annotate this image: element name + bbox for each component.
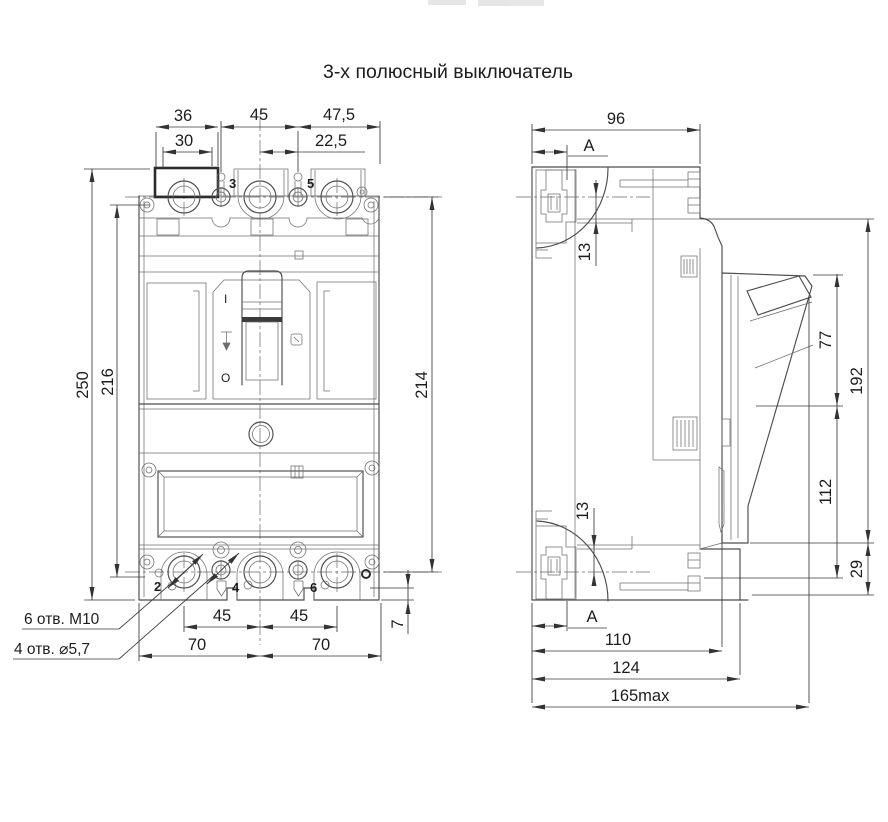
switch-on-symbol: I <box>224 292 227 306</box>
dim-250: 250 <box>74 371 92 399</box>
front-centerlines <box>125 116 442 645</box>
right-panel <box>317 282 376 399</box>
label-recess <box>158 471 363 537</box>
front-view: 3 5 I O <box>13 106 442 661</box>
mid-section <box>142 422 379 537</box>
vent-grille-icon <box>673 417 697 450</box>
dim-22-5: 22,5 <box>315 132 347 150</box>
dim-110: 110 <box>605 631 631 649</box>
terminal-section-bottom <box>536 511 608 601</box>
switch-area: I O <box>147 271 376 399</box>
pole-number-6: 6 <box>310 580 317 595</box>
section-label-a-top: A <box>583 137 594 155</box>
left-panel <box>147 283 206 399</box>
pole-number-3: 3 <box>229 176 236 191</box>
dim-77: 77 <box>817 331 835 349</box>
mounting-hole <box>364 198 378 212</box>
technical-drawing: 3-х полюсный выключатель <box>0 0 888 822</box>
dim-7: 7 <box>389 619 407 628</box>
toggle-handle <box>242 271 282 385</box>
seal-tab <box>291 466 303 478</box>
terminal-screw <box>688 172 700 187</box>
dim-214: 214 <box>413 371 431 399</box>
dim-192: 192 <box>848 367 866 395</box>
note-m10: 6 отв. М10 <box>24 611 100 628</box>
dim-70-right: 70 <box>312 636 330 654</box>
dim-45-bottom-right: 45 <box>290 607 308 625</box>
side-dimensions: 96 A 13 13 A 77 <box>532 110 874 707</box>
dim-45-top: 45 <box>250 106 268 124</box>
terminal-screw <box>688 576 700 591</box>
terminal-screw <box>688 553 700 568</box>
bottom-terminals: 2 4 6 <box>140 542 379 600</box>
dim-47-5: 47,5 <box>323 106 355 124</box>
dim-70-left: 70 <box>188 636 206 654</box>
dim-165max: 165max <box>611 687 670 705</box>
vent-grille-icon <box>681 256 697 277</box>
dim-216: 216 <box>99 368 117 396</box>
dim-13-top: 13 <box>576 243 594 261</box>
dim-13-bottom: 13 <box>574 502 592 520</box>
dim-124: 124 <box>612 659 640 677</box>
switch-off-symbol: O <box>221 371 230 385</box>
side-view: 96 A 13 13 A 77 <box>516 110 874 707</box>
dim-36: 36 <box>174 107 192 125</box>
side-outline <box>532 167 748 600</box>
handle-cover <box>700 273 813 549</box>
dim-45-bottom-left: 45 <box>213 607 231 625</box>
cropped-edge-artifact <box>428 0 544 6</box>
trip-position-icon <box>221 332 232 350</box>
top-terminals: 3 5 <box>140 170 378 219</box>
dim-96: 96 <box>607 110 625 128</box>
pole-number-2: 2 <box>154 579 161 594</box>
pole-number-4: 4 <box>232 580 240 595</box>
terminal-screw <box>688 198 700 213</box>
drawing-title: 3-х полюсный выключатель <box>323 61 573 83</box>
note-diameter-5-7: 4 отв. ⌀5,7 <box>14 641 90 658</box>
terminal-block-1 <box>155 168 218 197</box>
dim-112: 112 <box>817 479 835 505</box>
pole-number-5: 5 <box>307 176 314 191</box>
dim-30: 30 <box>175 132 193 150</box>
section-label-a-bottom: A <box>586 608 597 626</box>
dim-29: 29 <box>848 560 866 578</box>
terminal-block-2 <box>234 169 288 196</box>
front-dimensions: 36 45 47,5 30 22,5 250 216 214 45 45 70 … <box>74 106 438 661</box>
toggle-side-profile <box>747 276 811 315</box>
breaker-body-outline <box>139 168 379 600</box>
terminal-section-top <box>536 168 608 258</box>
drawing-canvas: 3-х полюсный выключатель <box>0 0 888 822</box>
